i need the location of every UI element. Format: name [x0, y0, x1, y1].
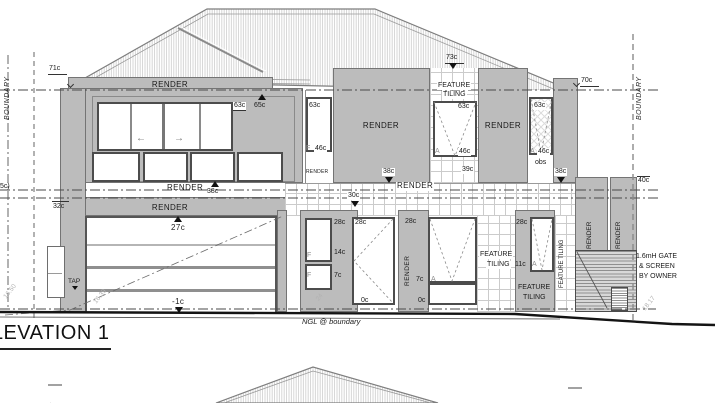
level-arrow-down-icon	[557, 177, 565, 183]
window-level-46c: 46c	[458, 148, 471, 156]
level-30c: 30c	[347, 192, 360, 200]
lowlight-window	[237, 152, 283, 182]
window-type-f: F	[306, 145, 310, 153]
lower-roof	[216, 367, 438, 403]
level-arrow-down-icon	[351, 201, 359, 207]
level-65c: 65c	[254, 102, 265, 110]
level-5c: 5c)	[0, 183, 10, 191]
boundary-label-bottom-right: BOUNDARY	[570, 389, 577, 403]
level-arrow-up-icon	[211, 181, 219, 187]
level-11c: 11c	[515, 261, 526, 269]
window-type-a: A	[530, 148, 535, 156]
gf-awning-window	[428, 217, 477, 283]
tiling-label: TILING	[442, 91, 467, 99]
feature-tiling-vertical-label: FEATURE TILING	[559, 216, 566, 288]
level-38c: 38c	[554, 168, 567, 176]
feature-label: FEATURE	[479, 251, 513, 259]
render-vertical-label: RENDER	[404, 228, 411, 286]
gate-note-line2: & SCREEN	[636, 262, 708, 272]
window-type-f: F	[307, 272, 311, 280]
level-28c: 28c	[405, 218, 416, 226]
level-7c: 7c	[334, 272, 341, 280]
tiling-label: TILING	[486, 261, 511, 269]
drawing-title: ELEVATION 1	[0, 322, 111, 350]
meter-box	[47, 246, 65, 298]
garage-panel-line	[87, 266, 275, 269]
level-14c: 14c	[334, 249, 345, 257]
window-mullion	[130, 104, 132, 149]
level-70c: 70c	[580, 77, 599, 87]
tap-label: TAP	[68, 278, 80, 285]
window-type-a: A	[435, 148, 440, 156]
gate-note-line1: 1.6mH GATE	[636, 252, 708, 262]
render-vertical-label: RENDER	[586, 203, 593, 249]
gate-panel	[611, 287, 628, 311]
render-vertical-label: RENDER	[615, 203, 622, 249]
meter-box-divider	[48, 273, 62, 274]
window-level-46c: 46c	[537, 148, 550, 156]
entry-door	[352, 217, 395, 305]
level-63c: 63c	[233, 102, 246, 111]
level-28c: 28c	[334, 219, 345, 227]
window-mullion	[162, 104, 165, 149]
tiling-label: TILING	[523, 294, 546, 302]
elevation-drawing: RENDER ← → RENDER RENDER RENDER	[0, 0, 715, 403]
strip-render-label: RENDER	[306, 170, 328, 176]
level-38c: 38c	[207, 188, 218, 196]
level-38c: 38c	[382, 168, 395, 176]
level-0c: 0c	[361, 297, 368, 305]
level-arrow-up-icon	[258, 94, 266, 100]
lowlight-window	[92, 152, 140, 182]
feature-label: FEATURE	[437, 82, 471, 90]
window-type-f: F	[307, 252, 311, 260]
level-28c: 28c	[516, 219, 527, 227]
gate-note: 1.6mH GATE & SCREEN BY OWNER	[636, 252, 708, 282]
level-71c: 71c	[48, 65, 67, 75]
level-28c: 28c	[355, 219, 366, 227]
level-7c: 7c	[416, 276, 423, 284]
window-level-63c: 63c	[533, 102, 546, 110]
window-level-63c: 63c	[457, 103, 470, 111]
level-32c: 32c	[52, 201, 69, 211]
level-arrow-down-icon	[385, 177, 393, 183]
level-arrow-down-icon	[175, 307, 183, 313]
level-minus1c: -1c	[172, 298, 184, 307]
window-mullion	[199, 104, 201, 149]
boundary-label-left: BOUNDARY	[4, 36, 11, 120]
level-arrow-up-icon	[174, 216, 182, 222]
garage-panel-line	[87, 244, 275, 246]
sliding-window: ← →	[97, 102, 233, 151]
tap-arrow-icon	[72, 286, 78, 290]
window-type-a: A	[431, 276, 436, 284]
render-block-label: RENDER	[351, 121, 411, 130]
parapet-render-label: RENDER	[130, 80, 210, 89]
feature-label: FEATURE	[518, 284, 550, 292]
render-label: RENDER	[167, 184, 203, 193]
ngl-label: NGL @ boundary	[302, 318, 360, 326]
window-type-a: A	[532, 261, 537, 269]
garage-panel-line	[87, 289, 275, 292]
window-level-63c: 63c	[308, 102, 321, 110]
slide-left-arrow-icon: ←	[136, 133, 146, 144]
obscure-glass-label: obs	[534, 159, 547, 167]
render-block-label: RENDER	[481, 121, 525, 130]
lowlight-window	[190, 152, 235, 182]
level-27c: 27c	[171, 224, 185, 233]
boundary-label-right: BOUNDARY	[636, 36, 643, 120]
garage-jamb	[277, 210, 287, 312]
window-level-46c: 46c	[314, 145, 327, 153]
boundary-label-bottom-left: BOUNDARY	[50, 386, 57, 403]
lowlight-window	[143, 152, 188, 182]
level-39c: 39c	[461, 166, 474, 174]
band-render-label: RENDER	[130, 203, 210, 212]
level-arrow-down-icon	[449, 63, 457, 69]
level-0c: 0c	[418, 297, 425, 305]
gf-window-spandrel	[428, 283, 477, 305]
render-label: RENDER	[396, 182, 434, 191]
level-40c: 40c	[637, 176, 650, 185]
slide-right-arrow-icon: →	[174, 133, 184, 144]
gate-note-line3: BY OWNER	[636, 272, 708, 282]
